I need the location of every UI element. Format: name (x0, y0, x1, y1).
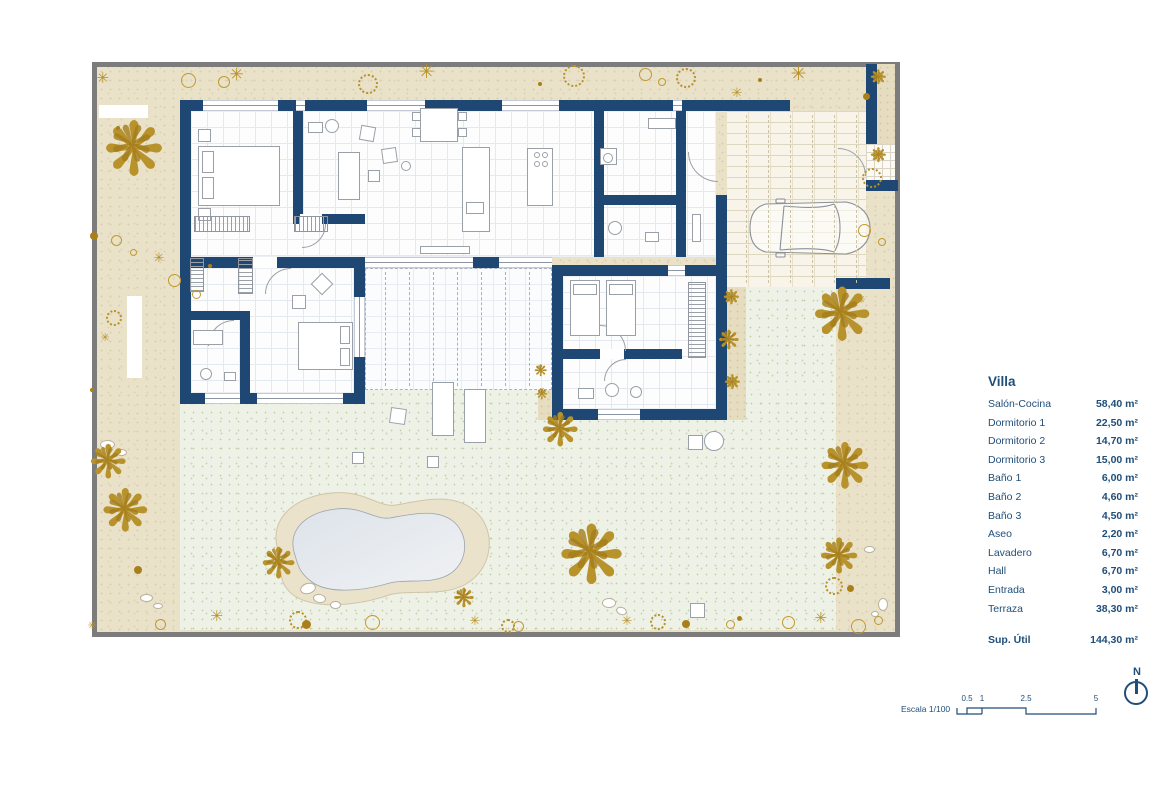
legend-row: Baño 24,60 m² (988, 491, 1138, 510)
fixture-circle (200, 368, 212, 380)
north-needle-icon (1135, 679, 1138, 694)
plant-star-icon: ✳ (230, 66, 247, 83)
scale-tick: 5 (1094, 694, 1098, 703)
window (354, 297, 365, 357)
legend-title: Villa (988, 374, 1138, 389)
plant-star-icon: ✳ (622, 614, 635, 627)
legend-row: Entrada3,00 m² (988, 584, 1138, 603)
wardrobe-hatched (238, 258, 253, 294)
legend-row-value: 15,00 m² (1096, 454, 1138, 466)
palm-tree-icon: ❋❋ (536, 387, 550, 401)
rock (330, 601, 341, 609)
driveway-dashed-line (768, 115, 770, 283)
furniture (359, 125, 376, 142)
wall-segment (552, 265, 727, 276)
plant-star-icon: ✳ (211, 609, 226, 624)
legend-row-value: 58,40 m² (1096, 398, 1138, 410)
furniture (427, 456, 439, 468)
fixture-circle (608, 221, 622, 235)
legend-row-value: 38,30 m² (1096, 603, 1138, 615)
plant-dot-icon (682, 620, 690, 628)
rock (878, 598, 888, 611)
furniture (389, 407, 407, 425)
plant-star-icon: ✳ (857, 295, 868, 306)
legend-rows: Salón-Cocina58,40 m²Dormitorio 122,50 m²… (988, 398, 1138, 621)
fixture-circle (534, 161, 540, 167)
wall-segment (594, 195, 686, 205)
palm-tree-icon: ❋❋ (453, 585, 479, 611)
window (668, 265, 685, 276)
shrub-circle-icon (130, 249, 137, 256)
legend-row: Aseo2,20 m² (988, 528, 1138, 547)
shrub-circle-icon (874, 616, 883, 625)
furniture (412, 128, 421, 137)
palm-tree-icon: ❋❋ (261, 543, 303, 585)
furniture (420, 246, 470, 254)
furniture (573, 284, 597, 295)
furniture (609, 284, 633, 295)
furniture (432, 382, 454, 436)
fixture-circle (630, 386, 642, 398)
pergola-dashed-line (433, 272, 435, 386)
scale-tick: 0.5 (961, 694, 972, 703)
plant-dot-icon (538, 82, 542, 86)
scale-tick: 1 (980, 694, 984, 703)
palm-tree-icon: ❋❋ (870, 68, 890, 88)
legend-row: Baño 16,00 m² (988, 472, 1138, 491)
furniture (308, 122, 323, 133)
legend-row-label: Dormitorio 1 (988, 417, 1045, 429)
furniture (692, 214, 701, 242)
bush-icon (676, 68, 696, 88)
legend-row: Baño 34,50 m² (988, 510, 1138, 529)
car-icon (746, 198, 874, 258)
pergola-dashed-line (481, 272, 483, 386)
bush-icon (358, 74, 378, 94)
scale-tick: 2.5 (1020, 694, 1031, 703)
window (502, 100, 559, 111)
plant-star-icon: ✳ (88, 621, 99, 632)
driveway-dashed-line (746, 115, 748, 283)
legend-row: Terraza38,30 m² (988, 603, 1138, 622)
furniture (466, 202, 484, 214)
plant-star-icon: ✳ (101, 333, 112, 344)
plant-star-icon: ✳ (154, 251, 167, 264)
driveway-dashed-line (790, 115, 792, 283)
plant-star-icon: ✳ (815, 611, 830, 626)
legend-row-label: Lavadero (988, 547, 1032, 559)
wall-segment (293, 111, 303, 221)
rock (153, 603, 163, 609)
legend-row-label: Aseo (988, 528, 1012, 540)
furniture (340, 326, 350, 344)
legend-row: Dormitorio 315,00 m² (988, 454, 1138, 473)
fixture-circle (534, 152, 540, 158)
door-opening (253, 257, 277, 268)
plant-dot-icon (208, 264, 212, 268)
shrub-circle-icon (726, 620, 735, 629)
wardrobe-hatched (688, 282, 706, 358)
plant-star-icon: ✳ (791, 65, 810, 84)
bush-icon (825, 577, 843, 595)
furniture (458, 112, 467, 121)
pool-water (293, 509, 465, 591)
legend-row-value: 3,00 m² (1102, 584, 1138, 596)
shrub-circle-icon (365, 615, 380, 630)
driveway-dashed-line (834, 115, 836, 283)
plant-dot-icon (847, 585, 854, 592)
legend-row-label: Baño 1 (988, 472, 1021, 484)
wall-segment (191, 257, 365, 268)
scale-bar (948, 692, 1118, 718)
legend-row: Hall6,70 m² (988, 565, 1138, 584)
palm-tree-icon: ❋❋ (718, 327, 744, 353)
fixture-circle (603, 153, 613, 163)
shrub-circle-icon (192, 290, 201, 299)
plant-dot-icon (90, 388, 94, 392)
furniture (648, 118, 676, 129)
wardrobe-hatched (294, 216, 328, 232)
furniture (464, 389, 486, 443)
furniture (420, 108, 458, 142)
window (598, 409, 640, 420)
window (205, 393, 240, 404)
legend-row-label: Terraza (988, 603, 1023, 615)
furniture (352, 452, 364, 464)
legend-row-value: 14,70 m² (1096, 435, 1138, 447)
shrub-circle-icon (218, 76, 230, 88)
wall-segment (473, 257, 499, 268)
bush-icon (862, 168, 882, 188)
driveway-dashed-line (812, 115, 814, 283)
legend-row: Lavadero6,70 m² (988, 547, 1138, 566)
plant-star-icon: ✳ (732, 86, 745, 99)
furniture (198, 129, 211, 142)
fixture-circle (325, 119, 339, 133)
wardrobe-hatched (190, 258, 204, 292)
legend-row-label: Salón-Cocina (988, 398, 1051, 410)
shrub-circle-icon (851, 619, 866, 634)
legend-row-label: Baño 3 (988, 510, 1021, 522)
legend-total-label: Sup. Útil (988, 634, 1031, 646)
furniture (578, 388, 594, 399)
furniture (458, 128, 467, 137)
furniture (193, 330, 223, 345)
fixture-circle (704, 431, 724, 451)
furniture (338, 152, 360, 200)
legend-row-value: 4,50 m² (1102, 510, 1138, 522)
plant-star-icon: ✳ (470, 614, 483, 627)
plant-star-icon: ✳ (97, 71, 112, 86)
furniture (224, 372, 236, 381)
shrub-circle-icon (782, 616, 795, 629)
window (257, 393, 343, 404)
fixture-circle (605, 383, 619, 397)
legend-total-value: 144,30 m² (1090, 634, 1138, 646)
wall-segment (240, 315, 250, 393)
north-label: N (1133, 666, 1141, 678)
furniture (381, 147, 398, 164)
furniture (688, 435, 703, 450)
palm-tree-icon: ❋❋ (534, 364, 550, 380)
plant-dot-icon (116, 126, 120, 130)
furniture (462, 147, 490, 232)
window (365, 257, 473, 268)
driveway-dashed-line (856, 115, 858, 283)
palm-tree-icon: ❋❋ (819, 437, 881, 499)
wall-segment (180, 100, 191, 404)
legend-row-value: 22,50 m² (1096, 417, 1138, 429)
palm-tree-icon: ❋❋ (812, 280, 884, 352)
window (296, 100, 305, 111)
wall-segment (594, 205, 604, 257)
furniture (412, 112, 421, 121)
fixture-circle (542, 152, 548, 158)
shrub-circle-icon (111, 235, 122, 246)
palm-tree-icon: ❋❋ (541, 407, 587, 453)
furniture (527, 148, 553, 206)
shrub-circle-icon (513, 621, 524, 632)
plant-dot-icon (302, 620, 311, 629)
palm-tree-icon: ❋❋ (101, 483, 159, 541)
shrub-circle-icon (181, 73, 196, 88)
pergola-dashed-line (529, 272, 531, 386)
wardrobe-hatched (194, 216, 250, 232)
furniture (645, 232, 659, 242)
palm-tree-icon: ❋❋ (723, 288, 743, 308)
shrub-circle-icon (639, 68, 652, 81)
furniture (340, 348, 350, 366)
window (203, 100, 278, 111)
shrub-circle-icon (155, 619, 166, 630)
rock (140, 594, 153, 602)
shrub-circle-icon (858, 224, 871, 237)
palm-tree-icon: ❋❋ (724, 373, 744, 393)
furniture (292, 295, 306, 309)
pergola-dashed-line (385, 272, 387, 386)
plant-dot-icon (90, 232, 98, 240)
legend-row-value: 6,70 m² (1102, 547, 1138, 559)
bush-icon (650, 614, 666, 630)
wall-segment (191, 311, 250, 320)
shrub-circle-icon (658, 78, 666, 86)
legend-row-label: Dormitorio 3 (988, 454, 1045, 466)
shrub-circle-icon (168, 274, 181, 287)
area-legend: Villa Salón-Cocina58,40 m²Dormitorio 122… (988, 374, 1138, 653)
plant-dot-icon (737, 616, 742, 621)
pergola-dashed-line (457, 272, 459, 386)
bush-icon (563, 65, 585, 87)
wall-segment (676, 111, 686, 257)
legend-row-label: Baño 2 (988, 491, 1021, 503)
furniture (368, 170, 380, 182)
window (673, 100, 682, 111)
window (499, 257, 552, 268)
legend-row-label: Hall (988, 565, 1006, 577)
legend-row: Dormitorio 214,70 m² (988, 435, 1138, 454)
plant-star-icon: ✳ (419, 63, 438, 82)
scale-label: Escala 1/100 (901, 704, 950, 714)
legend-row: Salón-Cocina58,40 m² (988, 398, 1138, 417)
north-arrow: N (1122, 666, 1152, 716)
fixture-circle (542, 161, 548, 167)
window (367, 100, 425, 111)
legend-row-value: 2,20 m² (1102, 528, 1138, 540)
pergola-dashed-line (505, 272, 507, 386)
plant-dot-icon (863, 93, 870, 100)
bush-icon (106, 310, 122, 326)
fixture-circle (401, 161, 411, 171)
furniture (202, 177, 214, 199)
shrub-circle-icon (878, 238, 886, 246)
legend-row-label: Entrada (988, 584, 1025, 596)
floor-plan-page: Villa Salón-Cocina58,40 m²Dormitorio 122… (0, 0, 1170, 785)
legend-total-row: Sup. Útil 144,30 m² (988, 634, 1138, 653)
stepping-stone (127, 296, 142, 378)
plant-dot-icon (758, 78, 762, 82)
palm-tree-icon: ❋❋ (870, 146, 890, 166)
palm-tree-icon: ❋❋ (819, 534, 867, 582)
legend-row: Dormitorio 122,50 m² (988, 417, 1138, 436)
palm-tree-icon: ❋❋ (103, 113, 177, 187)
legend-row-label: Dormitorio 2 (988, 435, 1045, 447)
pergola-dashed-line (409, 272, 411, 386)
plant-dot-icon (134, 566, 142, 574)
furniture (202, 151, 214, 173)
legend-row-value: 6,00 m² (1102, 472, 1138, 484)
legend-row-value: 6,70 m² (1102, 565, 1138, 577)
furniture (690, 603, 705, 618)
palm-tree-icon: ❋❋ (558, 516, 638, 596)
legend-row-value: 4,60 m² (1102, 491, 1138, 503)
wall-segment (552, 265, 563, 357)
